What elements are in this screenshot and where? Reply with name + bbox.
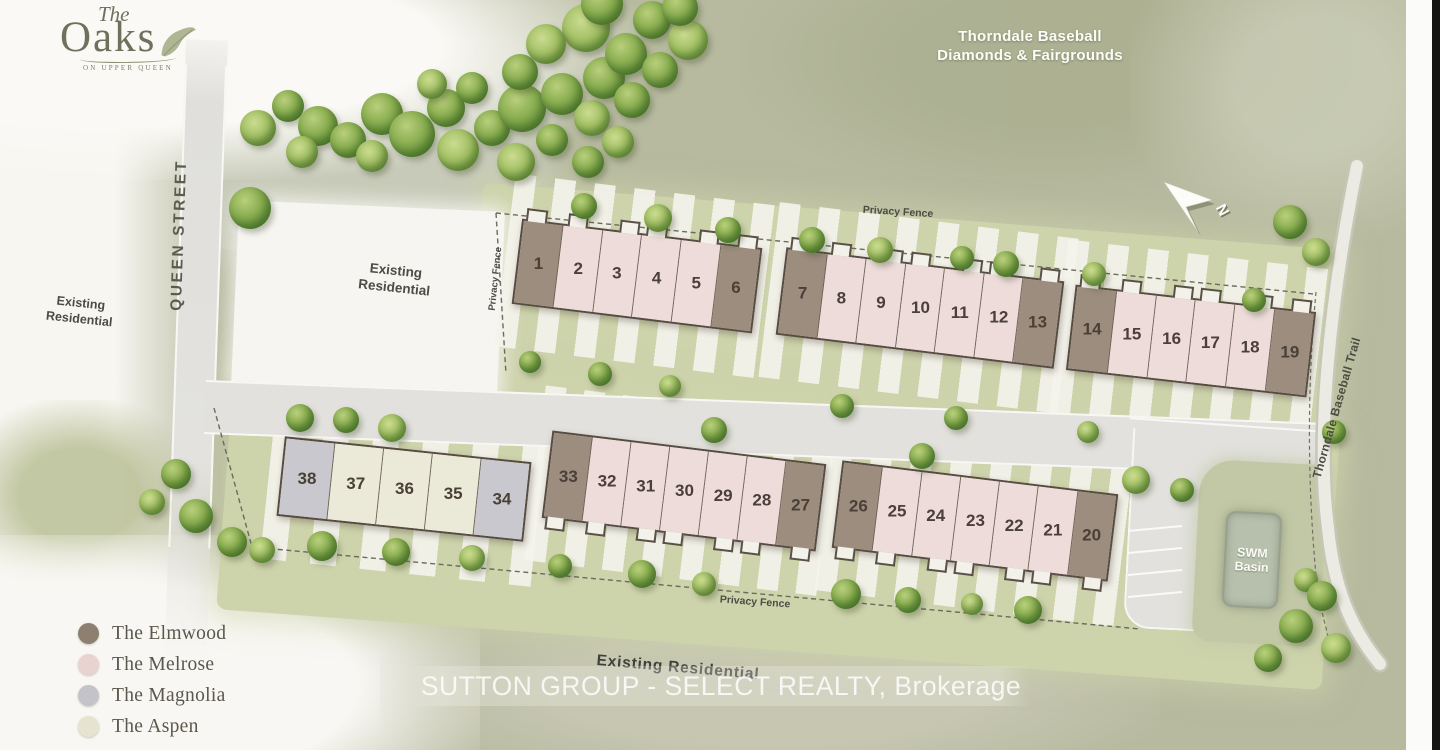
tree-icon (642, 52, 678, 88)
tree-icon (307, 531, 337, 561)
tree-icon (1307, 581, 1337, 611)
lot-number: 13 (1028, 312, 1047, 332)
lot-24-porch (926, 558, 947, 573)
lot-17-porch (1200, 288, 1222, 303)
tree-icon (644, 204, 672, 232)
tree-icon (1170, 478, 1194, 502)
tree-icon (1014, 596, 1042, 624)
lot-number: 9 (876, 293, 885, 313)
tree-icon (614, 82, 650, 118)
tree-icon (286, 136, 318, 168)
legend-label: The Melrose (112, 654, 214, 676)
lot-number: 33 (558, 467, 577, 487)
lot-number: 1 (533, 254, 542, 274)
legend-item-melrose: The Melrose (78, 649, 226, 680)
tree-icon (701, 417, 727, 443)
tree-icon (229, 187, 271, 229)
lot-number: 30 (675, 481, 694, 501)
lot-number: 29 (713, 486, 732, 506)
lot-23-porch (953, 561, 974, 576)
legend-color-dot (78, 716, 99, 737)
lot-1-porch (526, 208, 548, 223)
lot-number: 22 (1005, 516, 1024, 536)
existing-residential-parcel (231, 200, 505, 397)
tree-icon (961, 593, 983, 615)
lot-number: 38 (297, 469, 316, 489)
tree-icon (571, 193, 597, 219)
thorndale-fairgrounds-label: Thorndale Baseball Diamonds & Fairground… (900, 28, 1160, 66)
tree-icon (950, 246, 974, 270)
legend-label: The Aspen (112, 716, 199, 738)
lot-34: 34 (474, 459, 530, 540)
tree-icon (1082, 262, 1106, 286)
tree-icon (715, 217, 741, 243)
logo-leaf-icon (152, 22, 205, 65)
legend-label: The Elmwood (112, 623, 226, 645)
tree-icon (944, 406, 968, 430)
legend-item-elmwood: The Elmwood (78, 618, 226, 649)
tree-icon (333, 407, 359, 433)
oaks-logo: The Oaks ON UPPER QUEEN (52, 2, 232, 84)
lot-number: 27 (791, 495, 810, 515)
lot-number: 12 (989, 308, 1008, 328)
lot-3-porch (619, 220, 641, 235)
tree-icon (1122, 466, 1150, 494)
tree-icon (993, 251, 1019, 277)
lot-number: 19 (1280, 342, 1299, 362)
legend-label: The Magnolia (112, 685, 226, 707)
lot-number: 5 (692, 273, 701, 293)
lot-number: 23 (966, 511, 985, 531)
tree-icon (249, 537, 275, 563)
swm-basin-label: SWM Basin (1234, 545, 1270, 575)
lot-number: 15 (1122, 324, 1141, 344)
brokerage-watermark: SUTTON GROUP - SELECT REALTY, Brokerage (412, 666, 1030, 706)
tree-icon (1273, 205, 1307, 239)
tree-icon (519, 351, 541, 373)
tree-icon (548, 554, 572, 578)
lot-28-porch (740, 540, 761, 555)
lot-36: 36 (376, 449, 433, 530)
lot-number: 6 (731, 278, 740, 298)
tree-icon (799, 227, 825, 253)
lot-number: 8 (837, 288, 846, 308)
lot-15-porch (1121, 279, 1143, 294)
lot-number: 28 (752, 491, 771, 511)
tree-icon (605, 33, 647, 75)
legend-item-magnolia: The Magnolia (78, 680, 226, 711)
logo-tagline: ON UPPER QUEEN (83, 64, 173, 72)
lot-number: 3 (612, 264, 621, 284)
tree-icon (1302, 238, 1330, 266)
lot-number: 18 (1241, 338, 1260, 358)
lot-number: 25 (888, 501, 907, 521)
tree-icon (378, 414, 406, 442)
tree-icon (286, 404, 314, 432)
lot-6-porch (737, 234, 759, 249)
tree-icon (659, 375, 681, 397)
lot-38: 38 (279, 438, 336, 519)
lot-27-porch (790, 546, 811, 561)
right-black-strip (1432, 0, 1440, 750)
site-plan-map: 1234567891011121314151617181938373635343… (0, 0, 1440, 750)
lot-number: 11 (950, 303, 968, 323)
tree-icon (867, 237, 893, 263)
tree-icon (497, 143, 535, 181)
lot-33-porch (545, 516, 566, 531)
lot-number: 34 (492, 489, 511, 509)
tree-icon (456, 72, 488, 104)
lot-number: 32 (597, 471, 616, 491)
legend: The ElmwoodThe MelroseThe MagnoliaThe As… (78, 618, 226, 742)
tree-icon (240, 110, 276, 146)
tree-icon (574, 100, 610, 136)
tree-icon (437, 129, 479, 171)
lot-35: 35 (425, 454, 482, 535)
lot-26-porch (835, 546, 856, 561)
tree-icon (417, 69, 447, 99)
lot-number: 37 (346, 474, 365, 494)
lot-32-porch (585, 521, 606, 536)
tree-icon (588, 362, 612, 386)
tree-icon (161, 459, 191, 489)
tree-icon (572, 146, 604, 178)
lot-number: 14 (1083, 320, 1102, 340)
lot-number: 17 (1201, 333, 1220, 353)
lot-22-porch (1004, 567, 1025, 582)
lot-30-porch (662, 531, 683, 546)
lot-number: 7 (797, 284, 806, 304)
tree-icon (139, 489, 165, 515)
tree-icon (356, 140, 388, 172)
lot-number: 35 (443, 484, 462, 504)
tree-icon (909, 443, 935, 469)
lot-number: 31 (636, 476, 655, 496)
right-white-strip (1406, 0, 1432, 750)
tree-icon (895, 587, 921, 613)
lot-8-porch (831, 242, 852, 257)
lot-number: 20 (1082, 525, 1101, 545)
lot-29-porch (713, 537, 734, 552)
tree-icon (459, 545, 485, 571)
tree-icon (526, 24, 566, 64)
tree-icon (831, 579, 861, 609)
lot-number: 4 (652, 268, 661, 288)
lot-number: 21 (1043, 521, 1062, 541)
lot-20-porch (1081, 577, 1102, 592)
tree-icon (389, 111, 435, 157)
lot-number: 10 (911, 298, 930, 318)
lot-10-porch (910, 252, 931, 267)
legend-color-dot (78, 685, 99, 706)
lot-37: 37 (327, 444, 384, 525)
lot-number: 36 (395, 479, 414, 499)
tree-icon (1242, 288, 1266, 312)
tree-icon (536, 124, 568, 156)
lot-number: 24 (927, 506, 946, 526)
tree-icon (668, 20, 708, 60)
legend-color-dot (78, 623, 99, 644)
lot-number: 2 (573, 259, 582, 279)
tree-icon (1077, 421, 1099, 443)
lot-19-porch (1291, 298, 1313, 313)
lot-13-porch (1039, 267, 1060, 282)
tree-icon (830, 394, 854, 418)
lot-19: 19 (1266, 309, 1314, 395)
lot-number: 26 (849, 497, 868, 517)
lot-number: 16 (1162, 329, 1181, 349)
swm-basin: SWM Basin (1222, 511, 1283, 610)
tree-icon (1321, 633, 1351, 663)
lot-16-porch (1173, 285, 1195, 300)
lot-31-porch (636, 528, 657, 543)
tree-icon (498, 84, 546, 132)
legend-item-aspen: The Aspen (78, 711, 226, 742)
tree-icon (628, 560, 656, 588)
tree-icon (602, 126, 634, 158)
bg-top-right-light (1130, 0, 1440, 240)
lot-25-porch (875, 551, 896, 566)
legend-color-dot (78, 654, 99, 675)
tree-icon (1279, 609, 1313, 643)
tree-icon (217, 527, 247, 557)
tree-icon (1254, 644, 1282, 672)
lot-21-porch (1031, 570, 1052, 585)
tree-icon (179, 499, 213, 533)
tree-icon (382, 538, 410, 566)
